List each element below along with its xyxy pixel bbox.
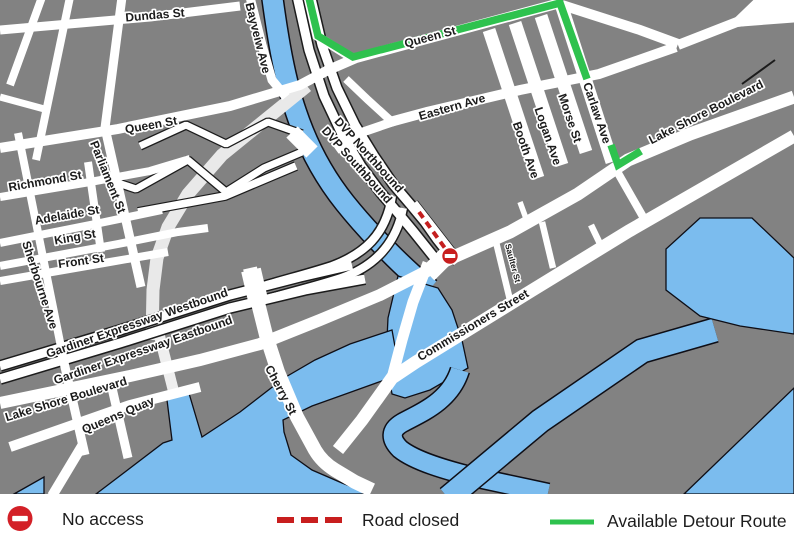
svg-text:No access: No access [62, 509, 144, 529]
svg-text:Road closed: Road closed [362, 510, 459, 530]
svg-text:Available Detour Route: Available Detour Route [607, 511, 787, 531]
